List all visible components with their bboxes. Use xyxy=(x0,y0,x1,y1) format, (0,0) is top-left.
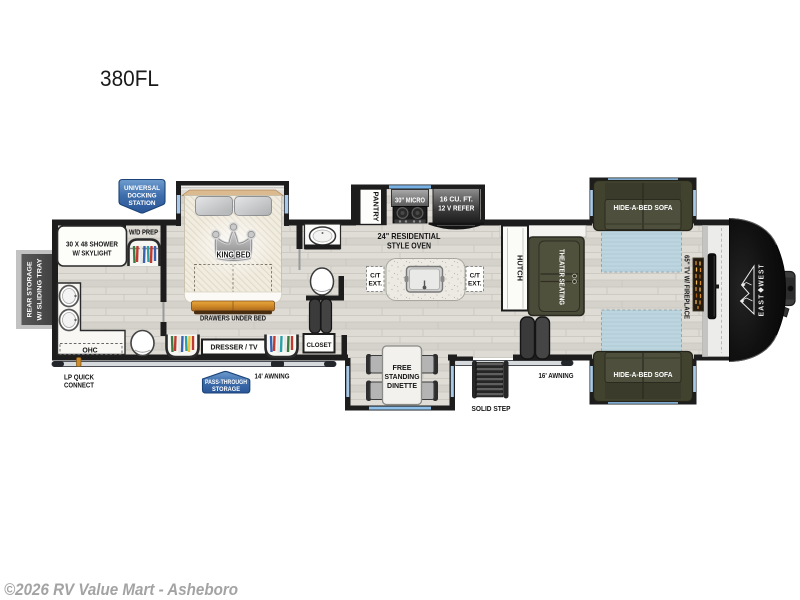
svg-text:14' AWNING: 14' AWNING xyxy=(255,372,290,381)
svg-text:DOCKING: DOCKING xyxy=(128,193,157,200)
svg-text:DRESSER / TV: DRESSER / TV xyxy=(211,343,258,352)
svg-text:24" RESIDENTIAL: 24" RESIDENTIAL xyxy=(378,231,441,241)
svg-text:KING BED: KING BED xyxy=(217,251,251,260)
svg-text:CONNECT: CONNECT xyxy=(64,383,95,390)
svg-text:C/T: C/T xyxy=(370,273,380,280)
svg-text:DINETTE: DINETTE xyxy=(387,381,417,390)
svg-text:OHC: OHC xyxy=(82,348,97,355)
svg-text:EXT.: EXT. xyxy=(369,281,383,288)
svg-text:PANTRY: PANTRY xyxy=(372,192,379,222)
svg-text:THEATER SEATING: THEATER SEATING xyxy=(558,249,567,305)
svg-text:PASS-THROUGH: PASS-THROUGH xyxy=(205,379,247,386)
svg-text:HUTCH: HUTCH xyxy=(516,255,525,281)
svg-text:SOLID STEP: SOLID STEP xyxy=(472,404,511,413)
svg-text:380FL: 380FL xyxy=(100,66,159,91)
svg-text:DRAWERS UNDER BED: DRAWERS UNDER BED xyxy=(200,314,267,323)
svg-text:C/T: C/T xyxy=(470,273,480,280)
svg-text:HIDE-A-BED SOFA: HIDE-A-BED SOFA xyxy=(614,203,673,212)
svg-text:W/ SKYLIGHT: W/ SKYLIGHT xyxy=(73,251,113,258)
svg-text:UNIVERSAL: UNIVERSAL xyxy=(124,185,160,192)
svg-text:12 V REFER: 12 V REFER xyxy=(438,204,474,213)
svg-text:W/ SLIDING TRAY: W/ SLIDING TRAY xyxy=(37,258,44,321)
svg-text:STYLE OVEN: STYLE OVEN xyxy=(387,241,431,251)
svg-text:STATION: STATION xyxy=(129,200,156,207)
svg-text:FREE: FREE xyxy=(393,363,412,372)
svg-text:STANDING: STANDING xyxy=(385,372,420,381)
svg-text:HIDE-A-BED SOFA: HIDE-A-BED SOFA xyxy=(614,370,673,379)
svg-text:EXT.: EXT. xyxy=(468,281,482,288)
svg-text:CLOSET: CLOSET xyxy=(307,342,333,349)
svg-text:65" TV W/ FIREPLACE: 65" TV W/ FIREPLACE xyxy=(683,255,692,319)
svg-text:EAST: EAST xyxy=(759,294,766,317)
svg-text:16' AWNING: 16' AWNING xyxy=(539,371,574,380)
svg-text:W/D PREP: W/D PREP xyxy=(129,228,158,237)
svg-text:STORAGE: STORAGE xyxy=(212,386,241,393)
svg-text:16 CU. FT.: 16 CU. FT. xyxy=(440,195,473,204)
svg-text:WEST: WEST xyxy=(759,264,766,287)
svg-text:©2026 RV Value Mart - Asheboro: ©2026 RV Value Mart - Asheboro xyxy=(4,581,238,599)
svg-text:30" MICRO: 30" MICRO xyxy=(395,198,425,205)
svg-text:LP QUICK: LP QUICK xyxy=(64,375,94,382)
svg-text:REAR STORAGE: REAR STORAGE xyxy=(27,262,34,318)
svg-text:30 X 48 SHOWER: 30 X 48 SHOWER xyxy=(66,242,118,249)
